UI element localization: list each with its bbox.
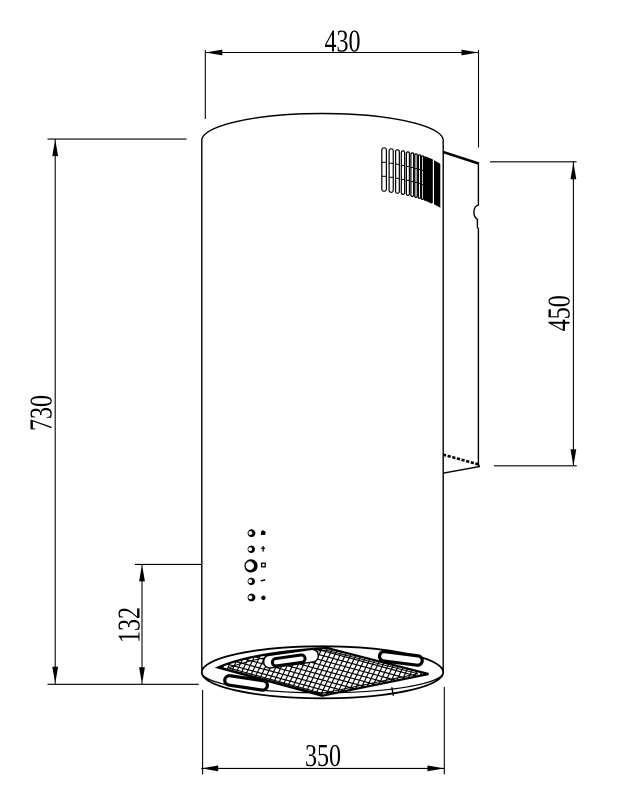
svg-text:430: 430 [325, 24, 361, 59]
svg-text:132: 132 [112, 607, 147, 643]
svg-text:350: 350 [305, 739, 341, 774]
svg-text:730: 730 [24, 395, 59, 431]
svg-text:450: 450 [542, 295, 577, 331]
